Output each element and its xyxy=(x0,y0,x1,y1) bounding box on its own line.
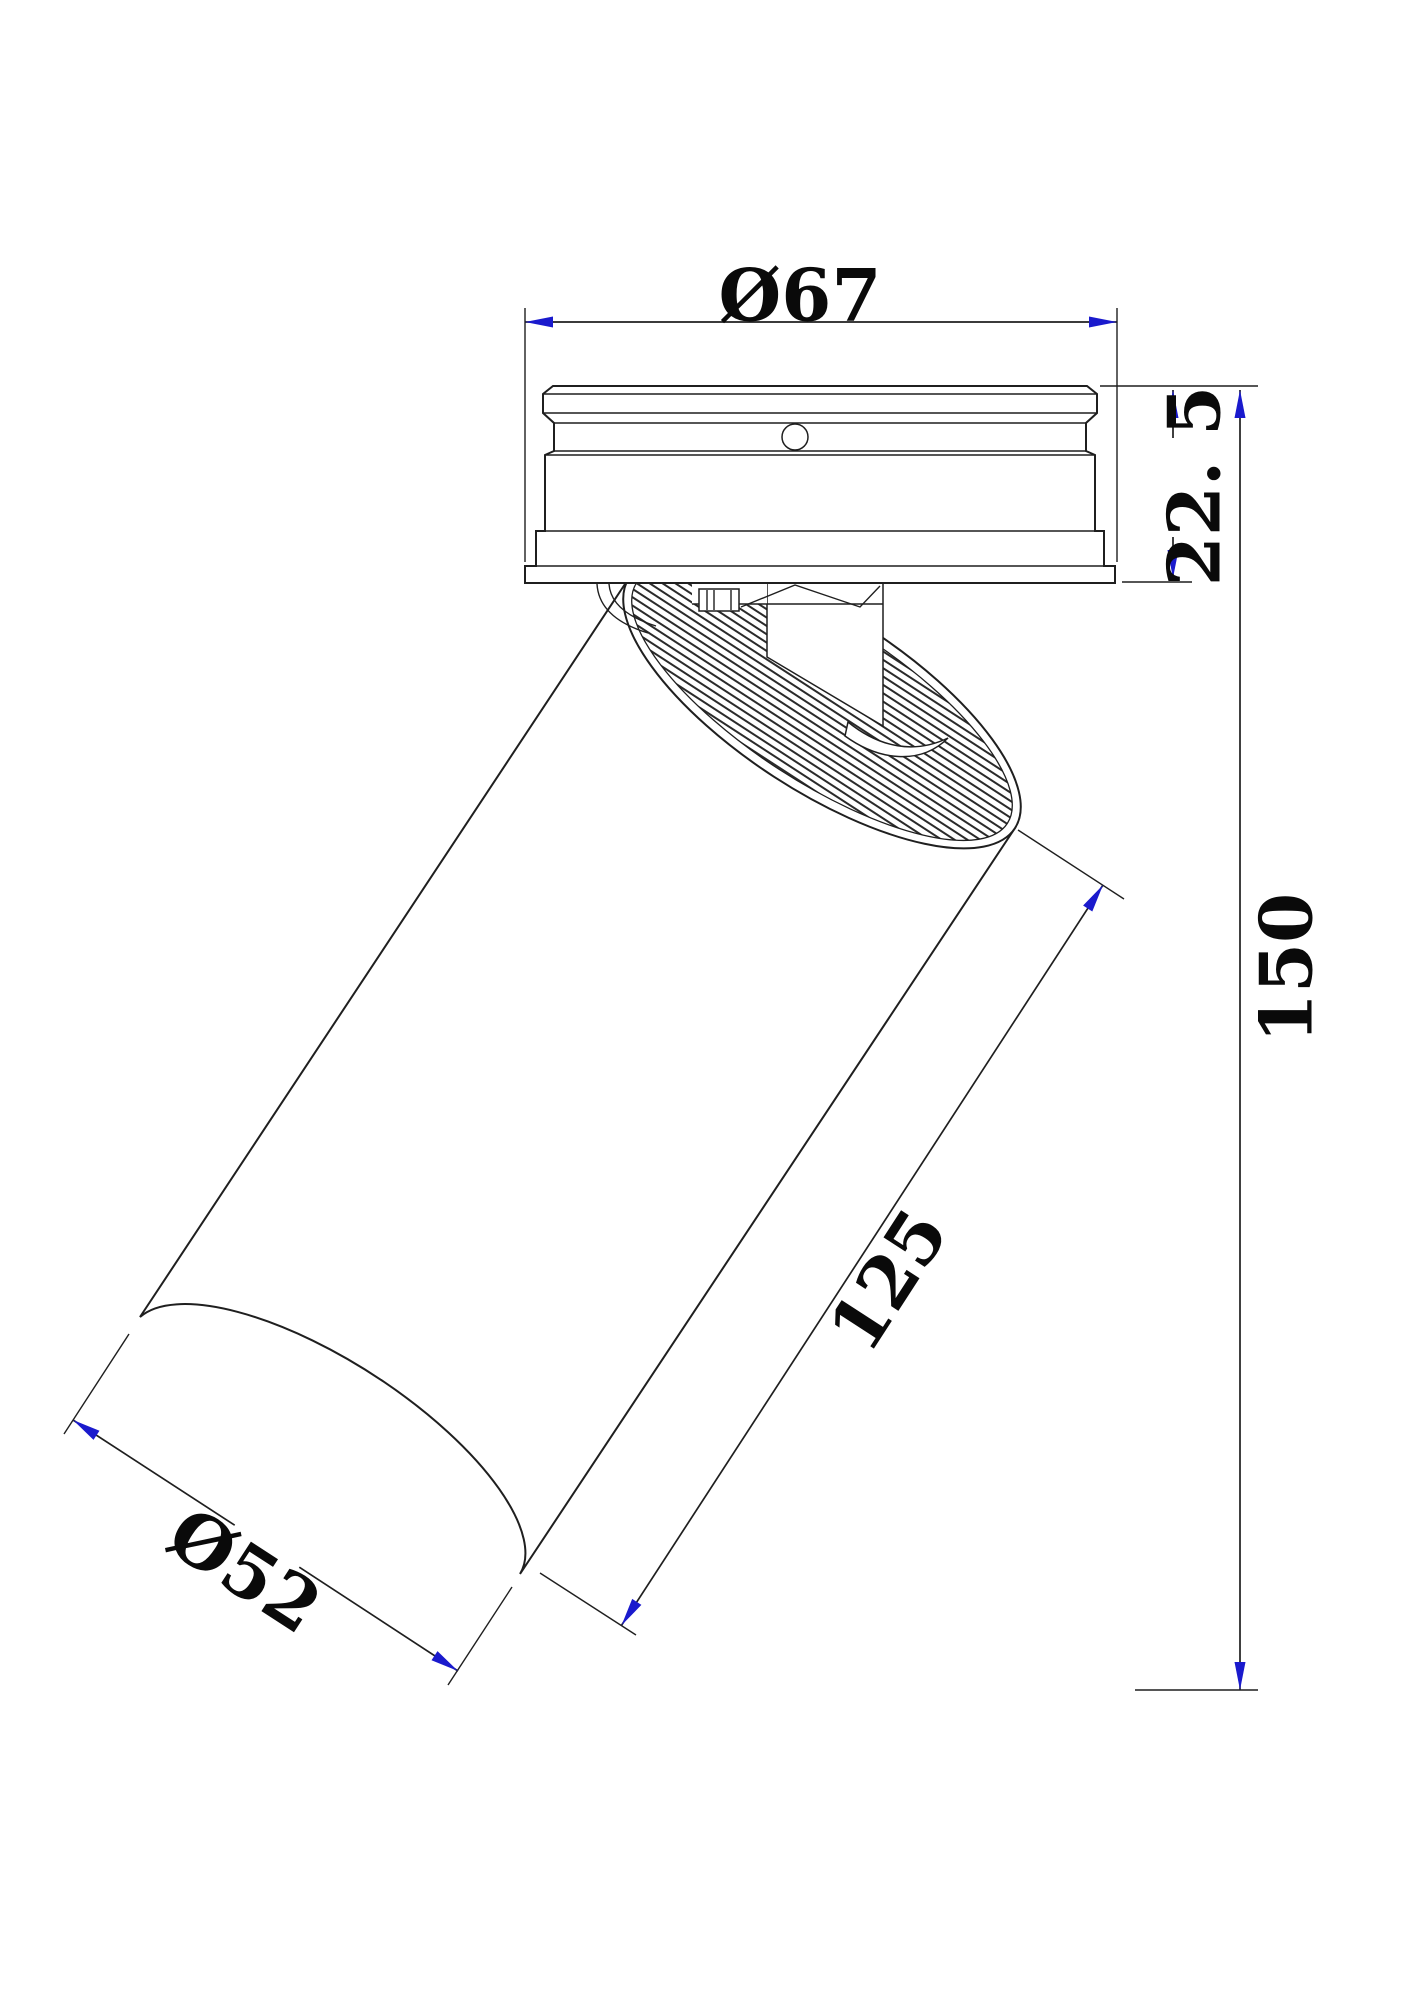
arrow-left-icon xyxy=(525,317,553,328)
arrow-right-icon xyxy=(1089,317,1117,328)
dim-body-length-label: 125 xyxy=(811,1194,964,1366)
arrow-down-left-icon xyxy=(622,1599,642,1626)
arrow-down-right-icon xyxy=(432,1651,459,1671)
arrow-up-left-icon xyxy=(73,1420,100,1440)
dim-canopy-height-label: 22. 5 xyxy=(1152,386,1237,586)
dim-overall-height-label: 150 xyxy=(1244,893,1329,1043)
dim-body-diameter-label: Ø52 xyxy=(154,1490,337,1650)
screw-head xyxy=(699,589,739,611)
dimension-canopy-height: 22. 5 xyxy=(1100,386,1258,586)
drawing-page: Ø67 22. 5 150 125 Ø52 xyxy=(0,0,1414,2000)
spot-head-cylinder xyxy=(140,504,1063,1574)
dim-canopy-diameter-label: Ø67 xyxy=(719,253,882,338)
arrow-down-icon xyxy=(1235,1662,1246,1690)
canopy-mount xyxy=(525,386,1115,583)
canopy-profile xyxy=(525,386,1115,583)
canopy-screw-hole xyxy=(782,424,808,450)
technical-drawing-canvas: Ø67 22. 5 150 125 Ø52 xyxy=(0,0,1414,2000)
arrow-up-right-icon xyxy=(1083,885,1103,912)
